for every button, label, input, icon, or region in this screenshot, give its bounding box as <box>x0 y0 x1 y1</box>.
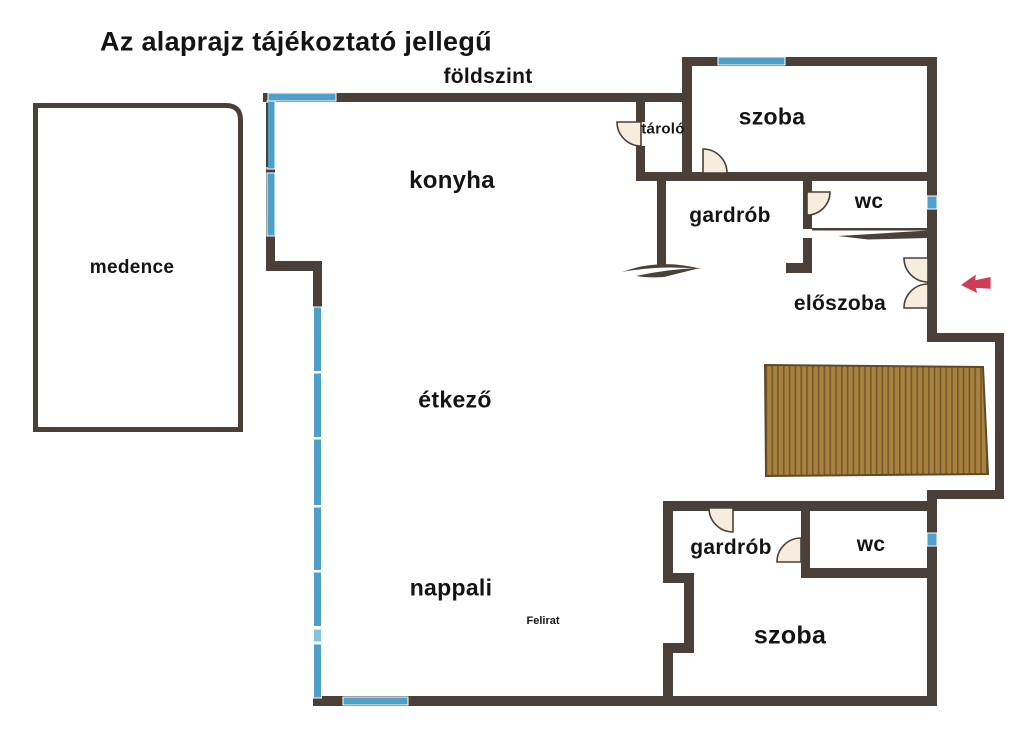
window-small <box>314 629 322 642</box>
door-swing-icon <box>777 538 801 562</box>
entrance-double-door-icon <box>904 284 928 308</box>
sliding-door-icon <box>812 228 928 231</box>
sliding-door-icon <box>622 264 701 272</box>
room-label-medence: medence <box>90 257 174 279</box>
room-label-szoba-felso: szoba <box>739 104 806 131</box>
door-swing-icon <box>807 192 830 215</box>
window <box>267 173 275 236</box>
room-label-gardrob-also: gardrób <box>690 536 771 560</box>
room-label-gardrob-felso: gardrób <box>689 204 770 228</box>
door-swing-icon <box>703 149 727 173</box>
room-label-szoba-also: szoba <box>754 622 826 651</box>
room-label-wc-felso: wc <box>855 190 884 214</box>
window <box>718 57 785 65</box>
sliding-door-icon <box>636 268 700 277</box>
entrance-arrow-icon <box>960 273 991 294</box>
door-swing-icon <box>709 508 733 532</box>
room-label-konyha: konyha <box>409 167 495 195</box>
terrace-deck <box>765 365 988 476</box>
floorplan-page: Az alaprajz tájékoztató jellegű földszin… <box>0 0 1024 732</box>
plan-title: Az alaprajz tájékoztató jellegű <box>100 27 492 58</box>
sliding-door-icon <box>838 231 928 240</box>
floor-label: földszint <box>443 65 532 89</box>
room-label-wc-also: wc <box>857 533 886 557</box>
window <box>927 533 937 546</box>
sliding-doors <box>622 228 928 277</box>
door-swing-icon <box>617 122 641 146</box>
window <box>268 93 336 101</box>
entrance-double-door-icon <box>904 258 928 282</box>
room-label-eloszoba: előszoba <box>794 292 886 316</box>
floorplan-drawing <box>0 0 1024 732</box>
note-label: Felirat <box>526 615 559 627</box>
window <box>343 697 408 705</box>
window <box>927 196 937 209</box>
room-label-etkezo: étkező <box>418 387 491 414</box>
room-label-tarolo: tároló <box>641 121 684 138</box>
room-label-nappali: nappali <box>410 575 493 602</box>
window <box>267 101 275 169</box>
